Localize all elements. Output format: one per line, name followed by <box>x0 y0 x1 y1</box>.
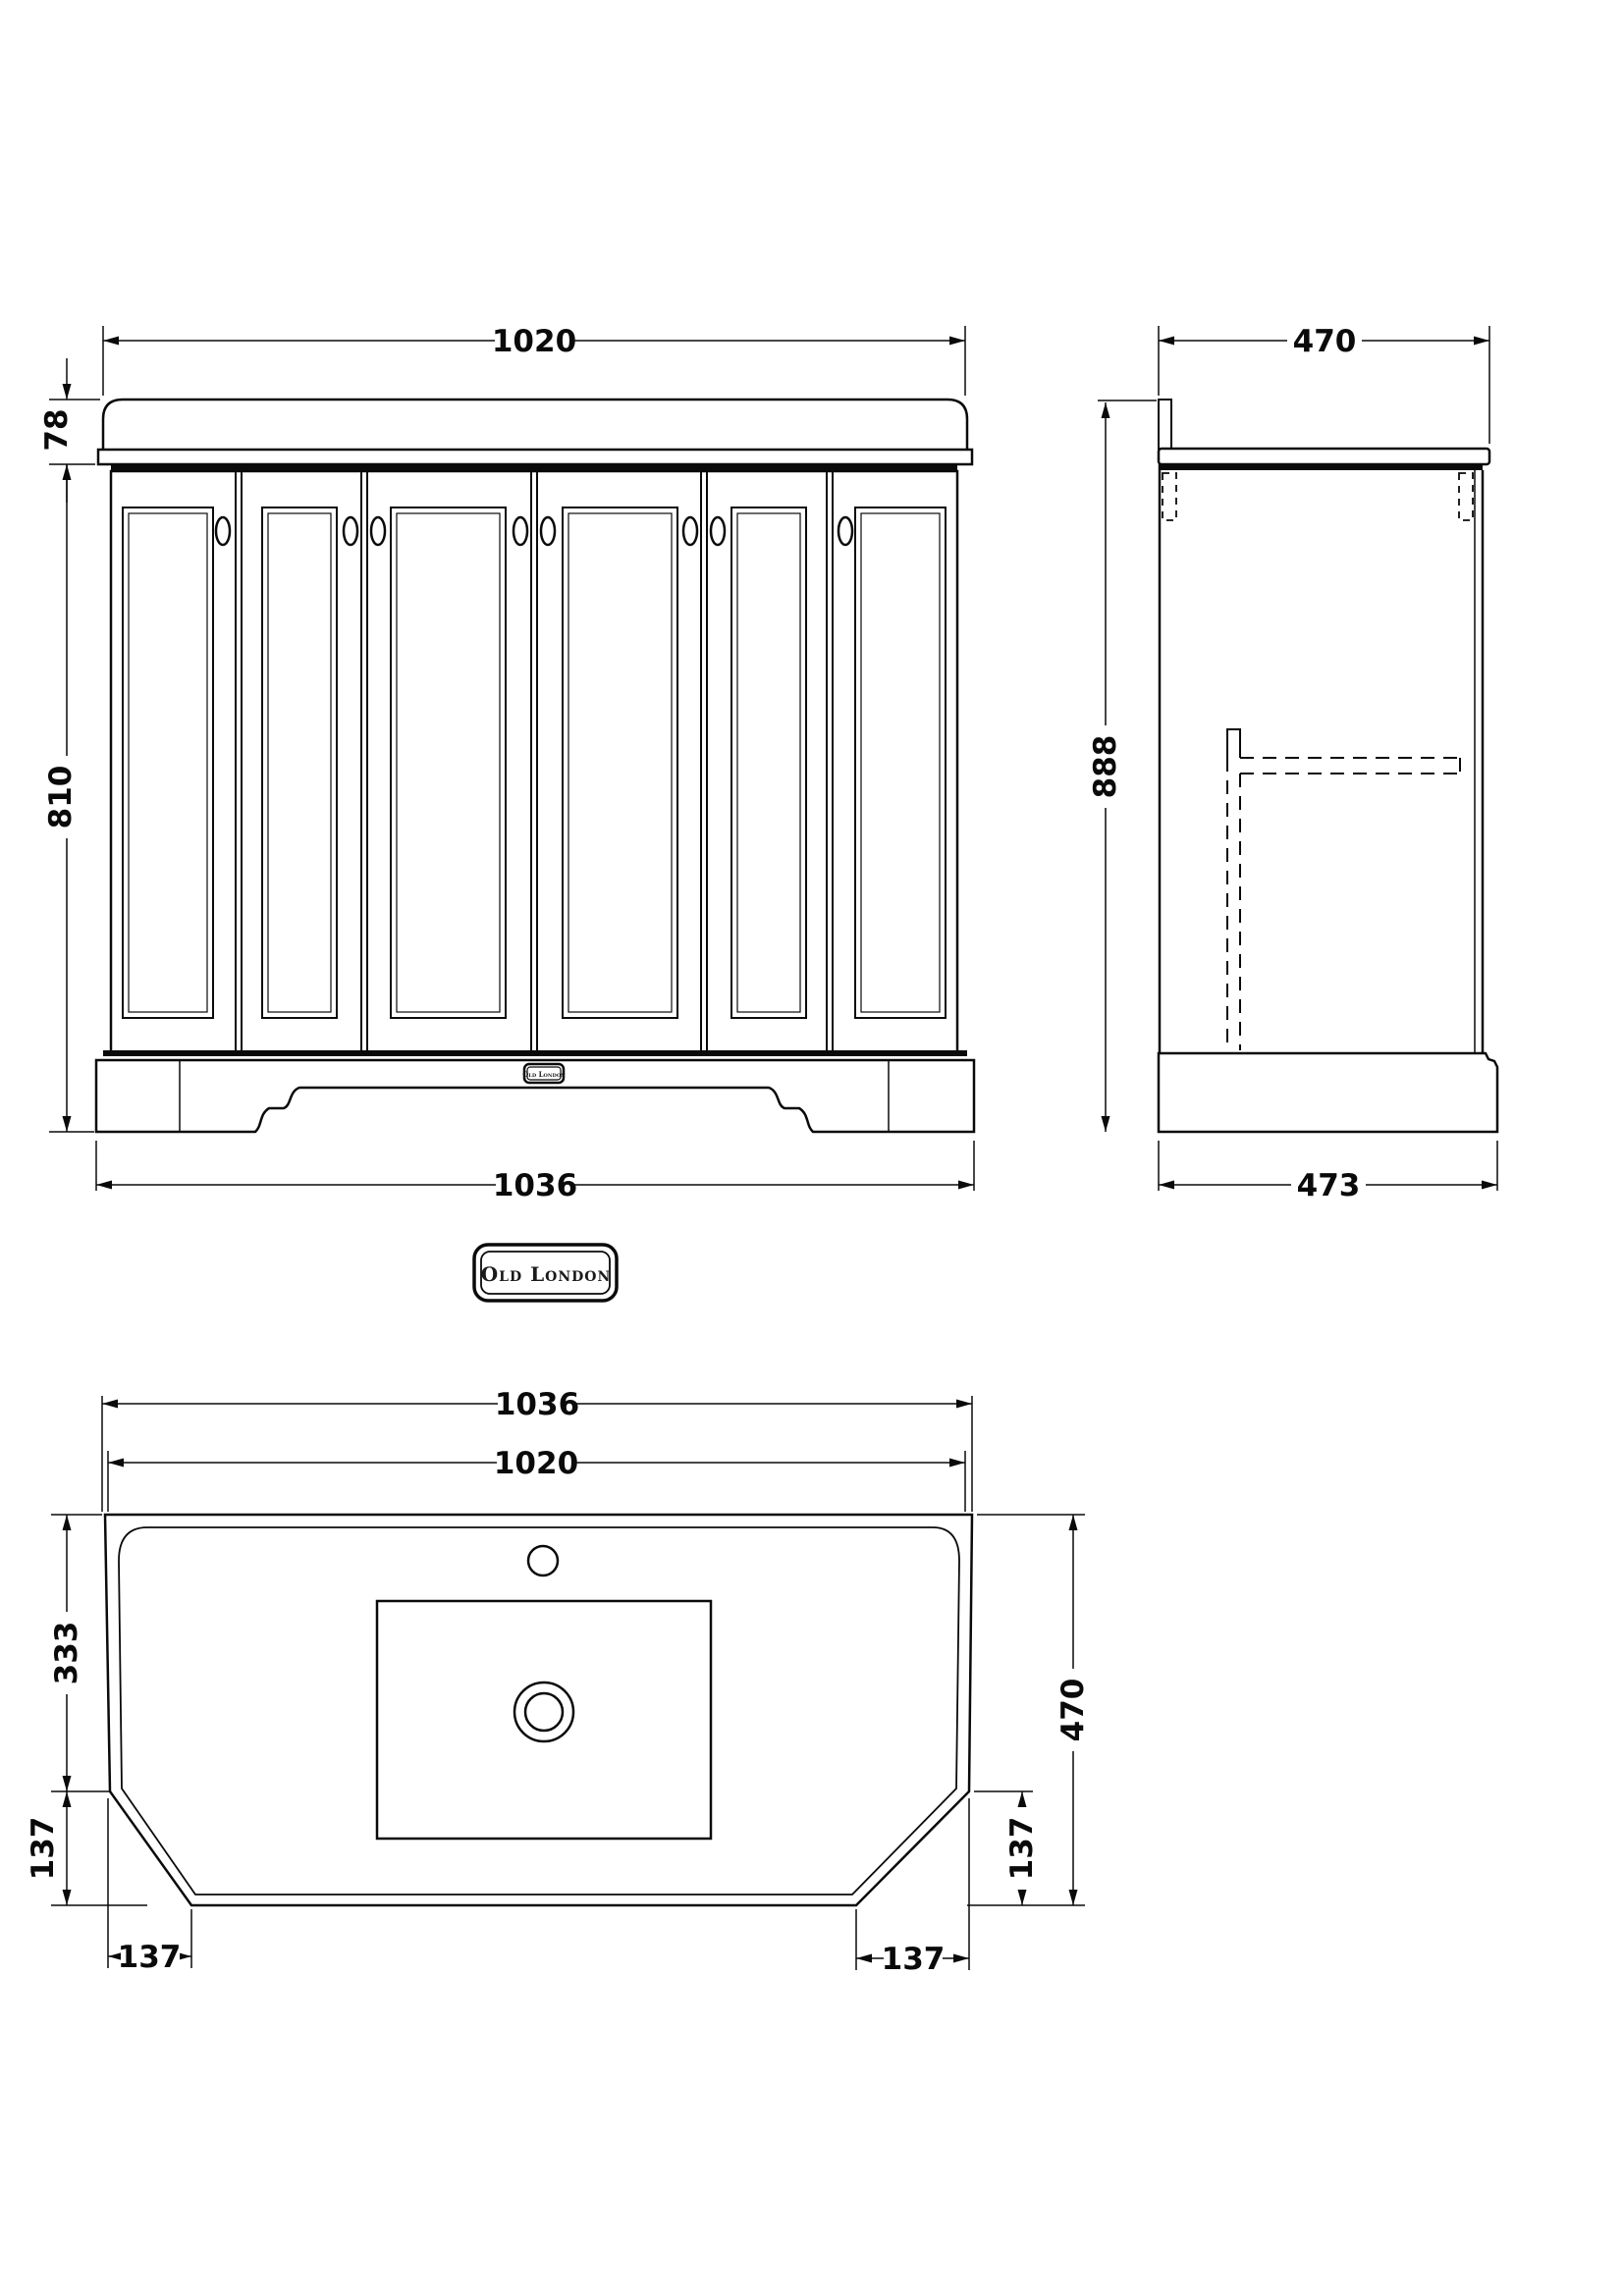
drawing-canvas: Old London 1020 78 <box>0 0 1623 2296</box>
door-handle-icon <box>683 517 697 545</box>
svg-text:470: 470 <box>1293 324 1357 359</box>
svg-text:473: 473 <box>1297 1168 1361 1203</box>
plinth-badge-text: Old London <box>522 1070 566 1079</box>
svg-text:137: 137 <box>118 1940 182 1975</box>
plinth-brand-badge: Old London <box>522 1064 566 1083</box>
dim-side-top-depth: 470 <box>1159 324 1489 444</box>
door-handle-icon <box>839 517 852 545</box>
svg-text:1020: 1020 <box>494 1446 578 1481</box>
drain-outer <box>514 1682 573 1741</box>
svg-text:137: 137 <box>882 1942 946 1977</box>
dim-plan-chamfer-left-vertical: 137 <box>26 1791 147 1905</box>
dim-front-top-width: 1020 <box>103 324 965 396</box>
svg-text:470: 470 <box>1055 1679 1091 1742</box>
side-plinth <box>1159 1053 1497 1132</box>
svg-text:1020: 1020 <box>492 324 576 359</box>
svg-text:78: 78 <box>39 408 75 451</box>
dim-front-base-width: 1036 <box>96 1141 974 1203</box>
svg-text:137: 137 <box>26 1817 61 1881</box>
dim-plan-chamfer-right-vertical: 137 <box>974 1791 1040 1905</box>
side-hidden-shelf <box>1227 729 1460 1050</box>
side-view: 470 888 473 <box>1088 324 1497 1203</box>
svg-text:1036: 1036 <box>495 1387 579 1422</box>
front-door-junctions <box>236 472 833 1052</box>
front-view: Old London 1020 78 <box>39 324 974 1203</box>
door-handle-icon <box>514 517 527 545</box>
front-countertop <box>103 400 967 450</box>
front-countertop-lip <box>98 450 972 464</box>
door-handle-icon <box>216 517 230 545</box>
door-handle-icon <box>711 517 725 545</box>
dim-plan-back-depth: 333 <box>49 1515 110 1791</box>
dim-front-counter-height: 78 <box>39 358 100 503</box>
svg-text:137: 137 <box>1004 1817 1040 1881</box>
front-door-handles <box>216 517 852 545</box>
tap-hole <box>528 1546 558 1575</box>
side-upstand <box>1159 400 1171 449</box>
plan-basin-bowl <box>377 1601 711 1839</box>
svg-text:810: 810 <box>43 766 79 829</box>
dim-plan-basin-width: 1020 <box>108 1446 965 1512</box>
technical-drawing-page: Old London 1020 78 <box>0 0 1623 2296</box>
door-handle-icon <box>371 517 385 545</box>
brand-badge-text: Old London <box>481 1262 612 1286</box>
plan-view: 1036 1020 333 137 <box>26 1387 1091 1977</box>
plan-outline <box>105 1515 972 1905</box>
door-handle-icon <box>344 517 357 545</box>
svg-text:888: 888 <box>1088 735 1123 799</box>
side-bracket-front <box>1459 473 1473 520</box>
front-door-panels <box>123 507 946 1018</box>
brand-badge: Old London <box>474 1245 617 1301</box>
dim-front-body-height: 810 <box>43 464 94 1132</box>
side-bracket-back <box>1163 473 1176 520</box>
front-cabinet-body <box>111 471 957 1052</box>
door-handle-icon <box>541 517 555 545</box>
front-base-shadow <box>103 1050 967 1056</box>
svg-text:1036: 1036 <box>493 1168 577 1203</box>
drain-inner <box>525 1693 563 1731</box>
dim-side-height: 888 <box>1088 400 1157 1132</box>
svg-text:333: 333 <box>49 1622 84 1685</box>
dim-side-base-depth: 473 <box>1159 1141 1497 1203</box>
side-top-shadow <box>1161 465 1483 470</box>
side-worktop <box>1159 449 1489 464</box>
